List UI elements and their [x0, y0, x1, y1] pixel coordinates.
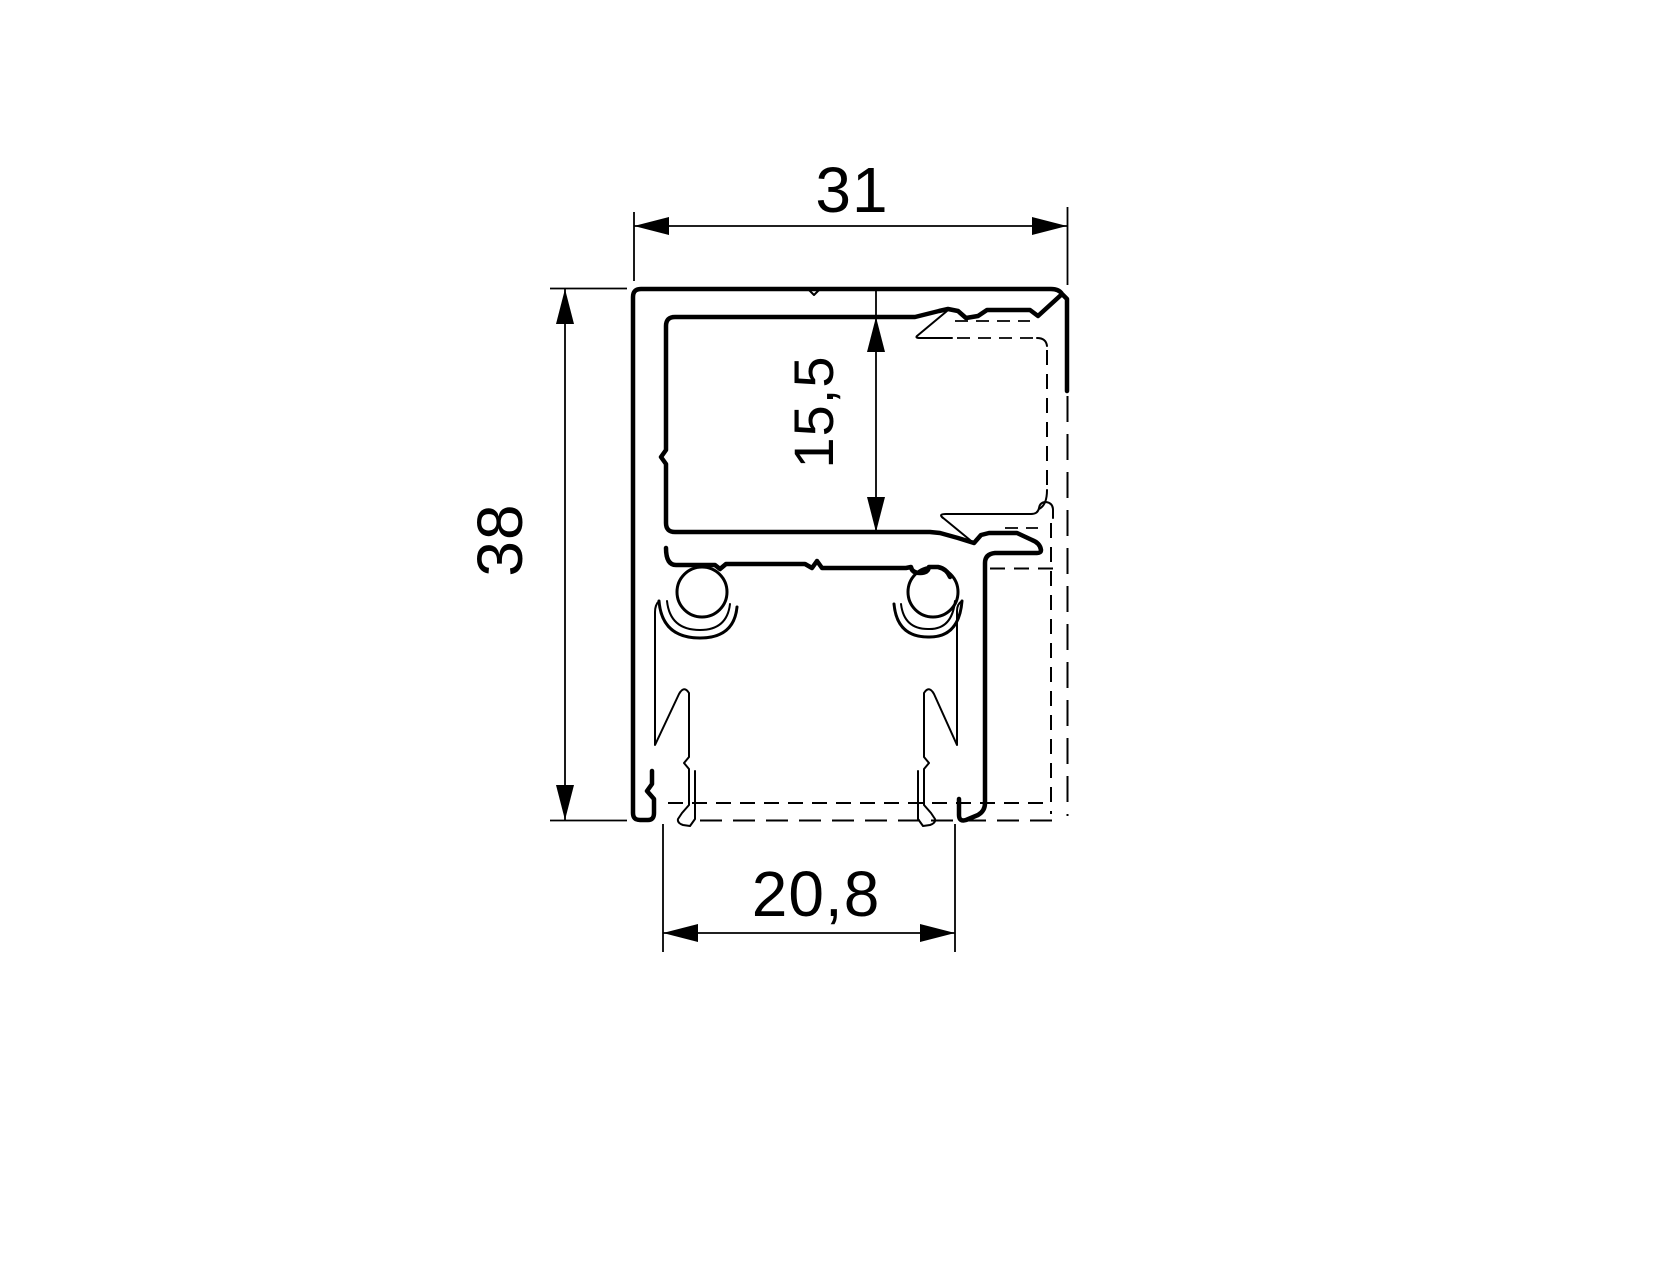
slot-top-hook: [1037, 338, 1047, 346]
profile-outline: [633, 289, 1067, 820]
bottom-groove-hook: [1031, 502, 1053, 518]
drawing-canvas: 31 38 15,5 20,8: [0, 0, 1680, 1261]
dimension-top-width: 31: [634, 154, 1068, 285]
dim-arrow-bottom: [867, 497, 885, 532]
dimension-left-height: 38: [464, 289, 627, 821]
dim-arrow-bottom: [556, 785, 574, 820]
dim-arrow-top: [867, 317, 885, 352]
right-screw-boss: [908, 567, 958, 617]
dimension-bottom-width: 20,8: [663, 824, 955, 952]
dimension-left-height-label: 38: [464, 503, 536, 576]
hidden-lines: [668, 321, 1068, 821]
dim-arrow-right: [1032, 217, 1067, 235]
gasket-grooves: [916, 311, 1053, 540]
dimension-bottom-width-label: 20,8: [752, 858, 881, 930]
web-bottom-line: [666, 548, 950, 577]
left-screw-boss: [677, 567, 727, 617]
dim-arrow-left: [634, 217, 669, 235]
bottom-groove-line: [941, 514, 1031, 518]
dim-arrow-left: [663, 924, 698, 942]
screw-bosses: [659, 567, 962, 638]
dim-arrow-top: [556, 289, 574, 324]
dimension-glazing-height: 15,5: [782, 290, 885, 532]
glazing-pocket-contour: [661, 295, 1061, 820]
dim-arrow-right: [920, 924, 955, 942]
dimension-top-width-label: 31: [815, 154, 888, 226]
left-clip: [655, 601, 695, 826]
profile-drawing: 31 38 15,5 20,8: [0, 0, 1680, 1261]
dimension-glazing-height-label: 15,5: [782, 356, 845, 469]
